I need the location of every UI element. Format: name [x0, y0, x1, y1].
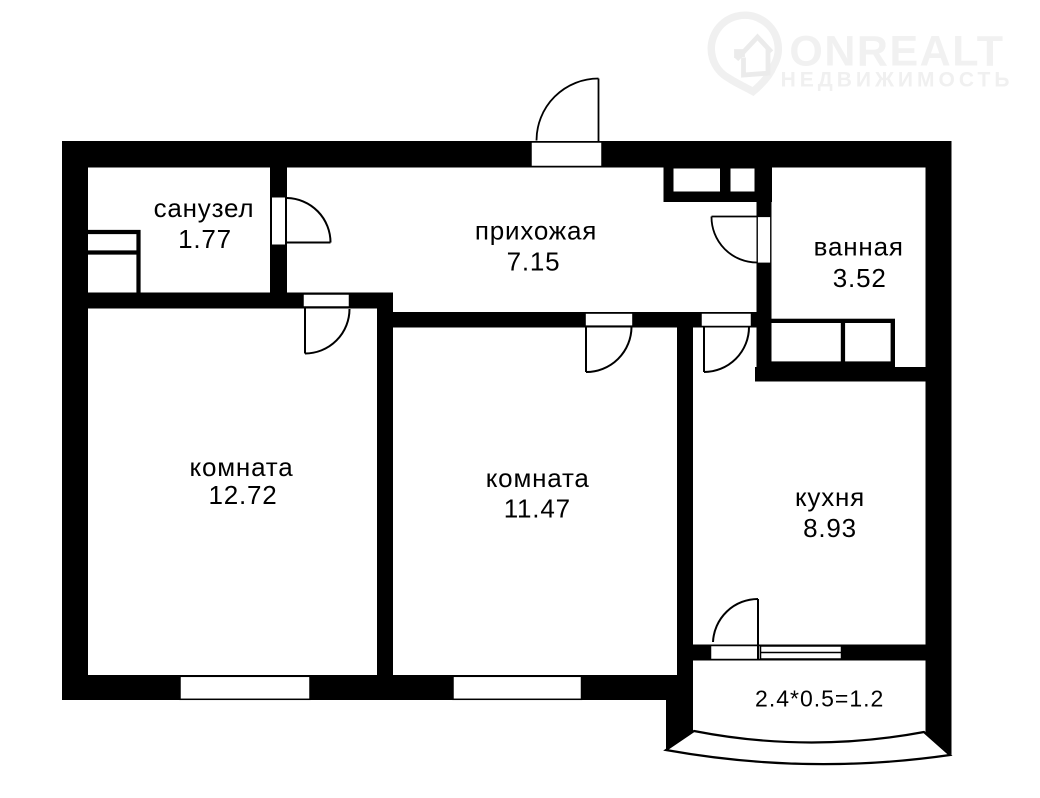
svg-text:1.77: 1.77: [178, 224, 232, 254]
svg-text:прихожая: прихожая: [475, 216, 597, 246]
svg-text:11.47: 11.47: [504, 493, 571, 523]
svg-text:8.93: 8.93: [803, 513, 857, 543]
svg-text:2.4*0.5=1.2: 2.4*0.5=1.2: [755, 686, 884, 712]
svg-text:комната: комната: [486, 463, 590, 493]
svg-text:ванная: ванная: [814, 232, 904, 262]
svg-text:комната: комната: [190, 452, 294, 482]
svg-text:12.72: 12.72: [208, 480, 277, 510]
svg-text:7.15: 7.15: [507, 247, 561, 277]
svg-text:НЕДВИЖИМОСТЬ: НЕДВИЖИМОСТЬ: [781, 69, 1014, 92]
svg-text:санузел: санузел: [154, 193, 255, 223]
svg-text:3.52: 3.52: [833, 263, 887, 293]
svg-text:кухня: кухня: [795, 482, 865, 512]
